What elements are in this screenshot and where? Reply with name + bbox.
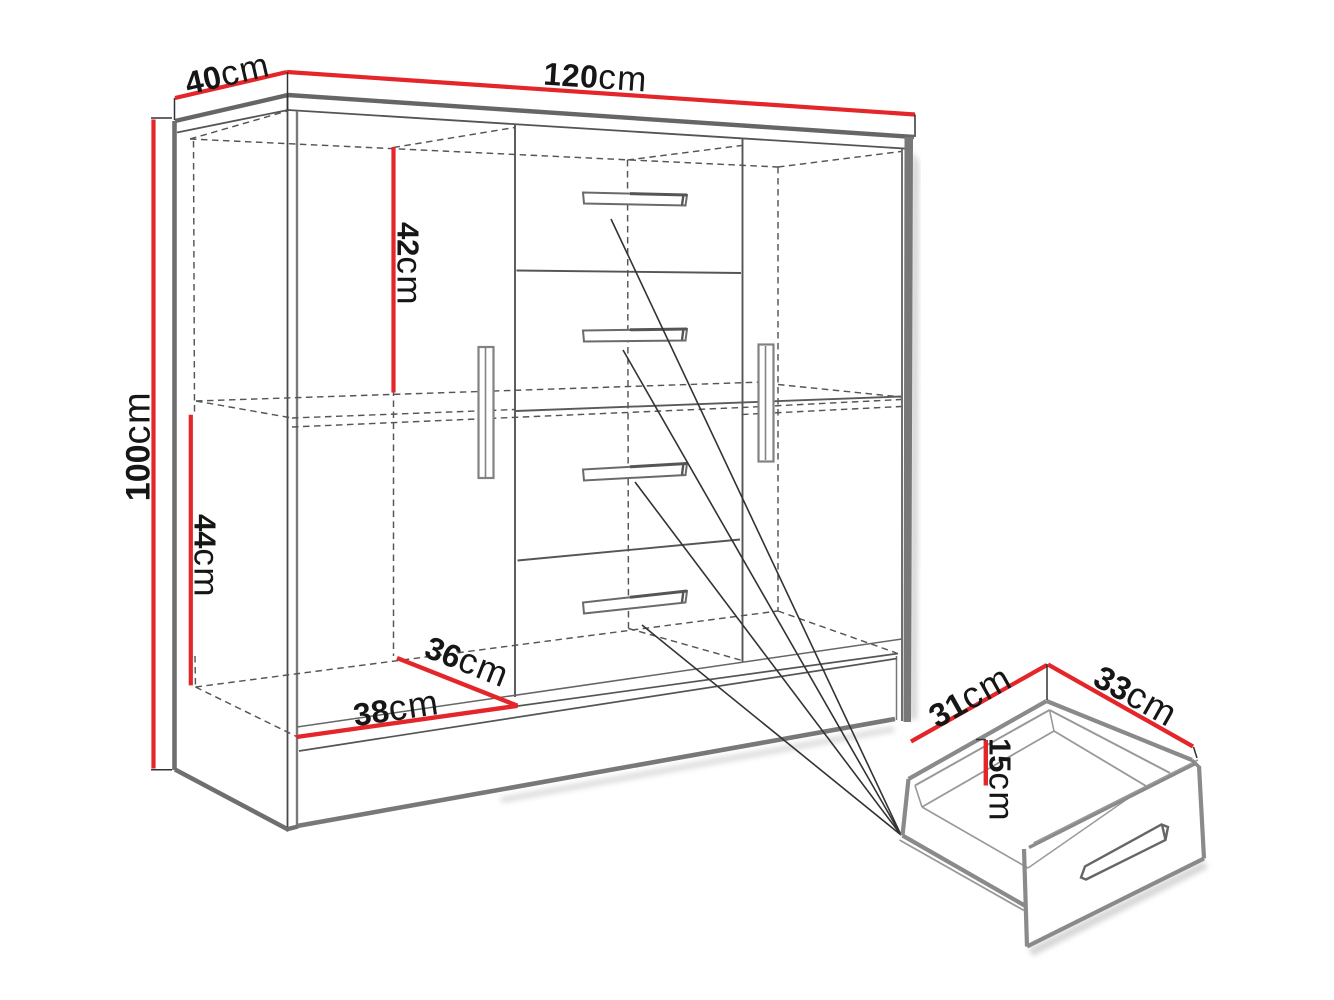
svg-text:15cm: 15cm [982,738,1021,822]
svg-text:42cm: 42cm [390,222,429,306]
svg-text:44cm: 44cm [187,514,226,598]
svg-text:100cm: 100cm [117,391,159,501]
